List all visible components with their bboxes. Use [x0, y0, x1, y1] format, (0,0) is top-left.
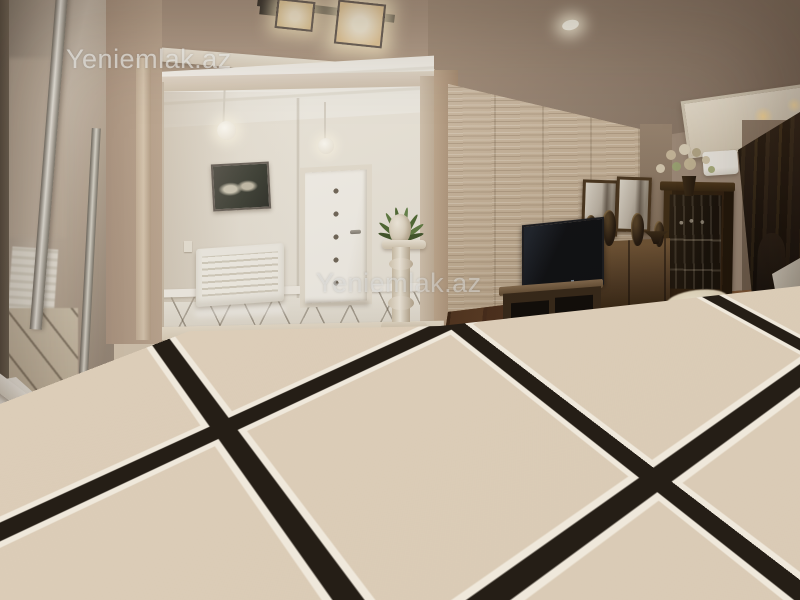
pedestal-foot: [387, 332, 421, 339]
watermark-center: Yeniemlak.az: [316, 268, 482, 299]
floor-gloss-highlight: [512, 548, 546, 564]
decorative-urn: [602, 210, 616, 246]
pendant-lamp-cord: [324, 102, 326, 140]
floor-gloss-highlight: [200, 448, 215, 456]
flower: [684, 158, 696, 170]
ceiling-fixture-glass-shade: [334, 0, 386, 48]
light-switch: [184, 241, 192, 252]
flower: [692, 148, 701, 157]
floor-gloss-highlight: [628, 500, 648, 510]
floor-gloss-highlight: [336, 372, 360, 384]
ceiling-fixture-glass-shade: [275, 0, 316, 32]
interior-photo: Yeniemlak.az Yeniemlak.az Yeniemlak.az: [0, 0, 800, 600]
tv-stand-shelf: [555, 295, 593, 313]
flower: [708, 166, 715, 173]
wardrobe-metal-frame: [76, 128, 101, 428]
sheepskin-rug: [702, 297, 732, 311]
pendant-globe-lamp: [217, 121, 236, 140]
cabinet-glass-door: [668, 195, 722, 290]
glass-display-cabinet: [662, 184, 734, 299]
flower: [679, 144, 690, 155]
wardrobe-frame-edge: [0, 0, 9, 426]
flower: [672, 162, 681, 171]
decorative-urn: [631, 213, 644, 246]
wall-molding: [136, 58, 151, 340]
white-console-grille: [0, 430, 24, 600]
radiator-cover: [196, 243, 284, 307]
watermark-bottom-right: Yeniemlak.az: [549, 514, 721, 546]
door-handle: [350, 230, 361, 235]
framed-picture: [211, 162, 271, 212]
watermark-top-left: Yeniemlak.az: [66, 44, 232, 75]
tv-stand-shelf: [511, 300, 549, 318]
door-floor-shadow: [305, 301, 369, 306]
pendant-globe-lamp: [318, 138, 334, 154]
flower: [666, 150, 676, 160]
radiator-slats: [202, 251, 278, 296]
flower: [702, 156, 710, 164]
flower: [656, 164, 665, 173]
